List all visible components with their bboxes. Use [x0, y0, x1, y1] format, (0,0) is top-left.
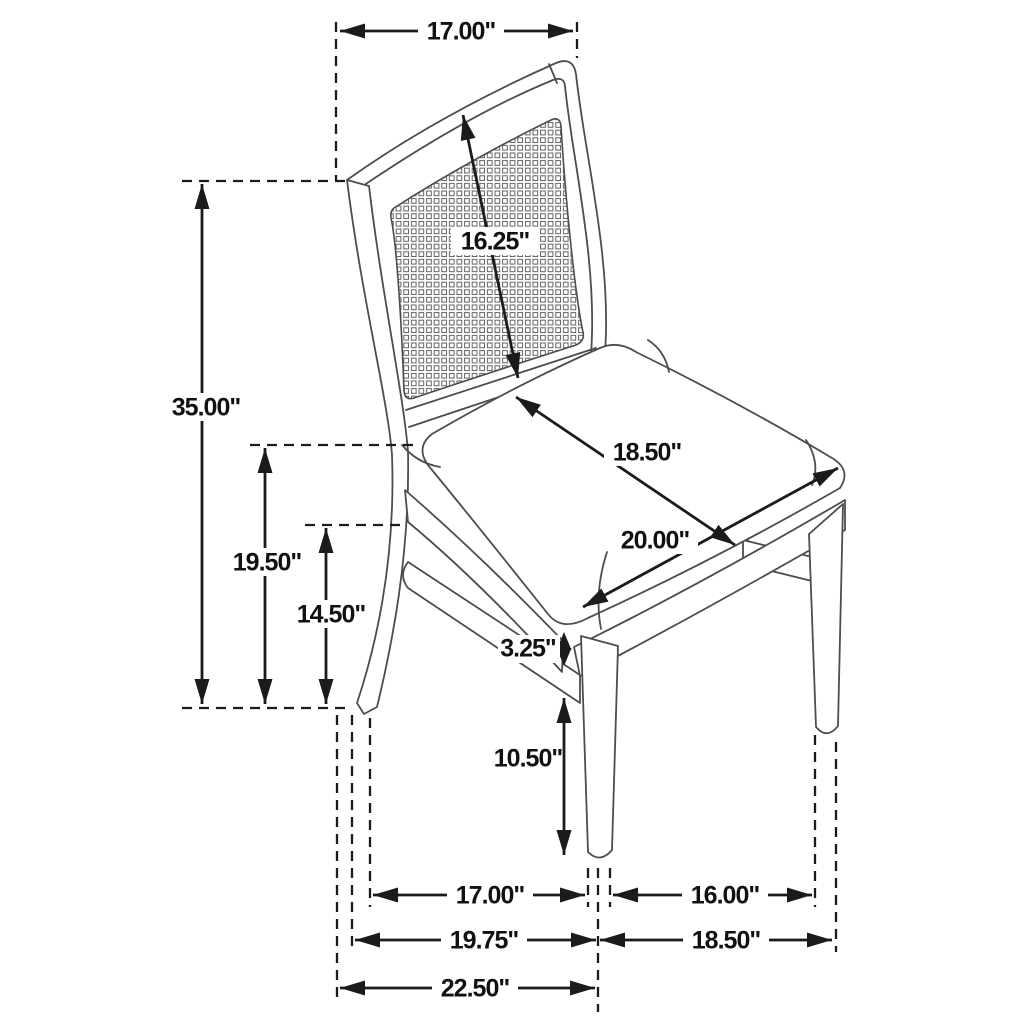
dimension-overall-height: 35.00" — [163, 184, 249, 704]
dim-label-apron-bottom-height: 14.50" — [297, 601, 366, 629]
dim-label-base-depth: 19.75" — [450, 927, 519, 955]
dim-label-back-top-width: 17.00" — [427, 18, 496, 46]
chair-front-left-leg — [581, 636, 618, 858]
dim-label-front-to-back-leg-span: 17.00" — [456, 882, 525, 910]
dim-label-overall-height: 35.00" — [172, 394, 241, 422]
chair-drawing — [347, 61, 845, 857]
dimension-front-leg-span: 16.00" — [613, 881, 812, 910]
dimension-overall-depth: 22.50" — [340, 974, 595, 1003]
dim-label-stretcher-to-floor: 10.50" — [494, 745, 563, 773]
dimension-base-depth: 19.75" — [355, 926, 596, 955]
dim-label-seat-height: 19.50" — [233, 549, 302, 577]
dim-label-seat-width: 20.00" — [621, 527, 690, 555]
dimension-seat-height: 19.50" — [224, 448, 310, 704]
dimension-front-to-back-leg-span: 17.00" — [373, 881, 585, 910]
dim-label-base-width: 18.50" — [692, 927, 761, 955]
dimension-back-top-width: 17.00" — [340, 17, 573, 46]
dim-label-overall-depth: 22.50" — [441, 975, 510, 1003]
chair-front-right-leg — [809, 504, 843, 733]
dim-label-front-leg-span: 16.00" — [691, 882, 760, 910]
dim-label-seat-depth: 18.50" — [613, 439, 682, 467]
dim-label-apron-to-stretcher-gap: 3.25" — [500, 635, 556, 663]
cane-panel — [391, 119, 584, 399]
chair-dimension-diagram: 17.00" 16.25" 35.00" 19.50" 14.50" 18.50… — [0, 0, 1024, 1024]
dim-label-back-panel-height: 16.25" — [461, 228, 530, 256]
dimension-base-width: 18.50" — [600, 926, 832, 955]
dimension-stretcher-to-floor: 10.50" — [494, 698, 564, 855]
diagram-canvas: 17.00" 16.25" 35.00" 19.50" 14.50" 18.50… — [0, 0, 1024, 1024]
